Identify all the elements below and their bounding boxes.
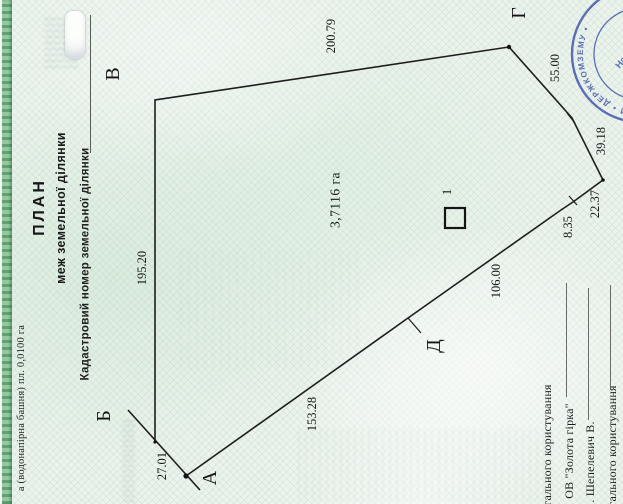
stamp-inner-text: Начальник: [613, 25, 623, 70]
legend-row-text: гального користування: [541, 384, 553, 504]
boundary-tick-line: [408, 318, 421, 333]
vertex-point: [183, 473, 188, 478]
official-stamp: ДЕРЖАВНИЙ КОМІТЕТ УКРАЇНИ • ДЕРЖКОМЗЕМУ …: [550, 0, 623, 144]
vertex-point: [153, 440, 156, 443]
scanned-land-plan-page: ПЛАН меж земельної ділянки Кадастровий н…: [0, 0, 623, 504]
parcel-area-label: 3,7116 га: [328, 172, 342, 228]
vertex-letter: В: [103, 67, 123, 80]
stamp-ring-text: ДЕРЖАВНИЙ КОМІТЕТ УКРАЇНИ • ДЕРЖКОМЗЕМУ …: [551, 0, 623, 144]
vertex-letter: Г: [509, 7, 529, 19]
edge-length-label: 153.28: [306, 397, 319, 431]
vertex-letter: Д: [424, 339, 444, 353]
vertex-letter: Б: [94, 410, 114, 421]
vertex-letter: А: [200, 471, 220, 485]
parcel-number-label: 1: [441, 189, 454, 195]
edge-length-label: 8.35: [562, 216, 575, 238]
legend-row-text: гального користування: [606, 385, 618, 504]
vertex-point: [601, 178, 605, 182]
legend-row-text: . Шепелевич В.: [584, 421, 596, 502]
legend-row-underline: [610, 285, 611, 390]
edge-length-label: 106.00: [490, 264, 503, 298]
svg-text:ДЕРЖАВНИЙ КОМІТЕТ УКРАЇНИ •: ДЕРЖАВНИЙ КОМІТЕТ УКРАЇНИ • ДЕРЖКОМЗЕМУ …: [551, 0, 623, 144]
parcel-symbol-square: [445, 208, 465, 228]
legend-row-text: ОВ "Золота гірка": [563, 403, 575, 499]
stamp-inner-ring: [594, 8, 623, 100]
vertex-point: [507, 45, 511, 49]
edge-length-label: 22.37: [589, 190, 602, 218]
edge-length-label: 200.79: [325, 19, 338, 53]
legend-row-underline: [588, 288, 589, 420]
edge-length-label: 195.20: [136, 251, 149, 285]
parcel-outline: [155, 47, 603, 476]
legend-row-underline: [566, 283, 567, 397]
edge-length-label: 27.01: [156, 452, 169, 480]
